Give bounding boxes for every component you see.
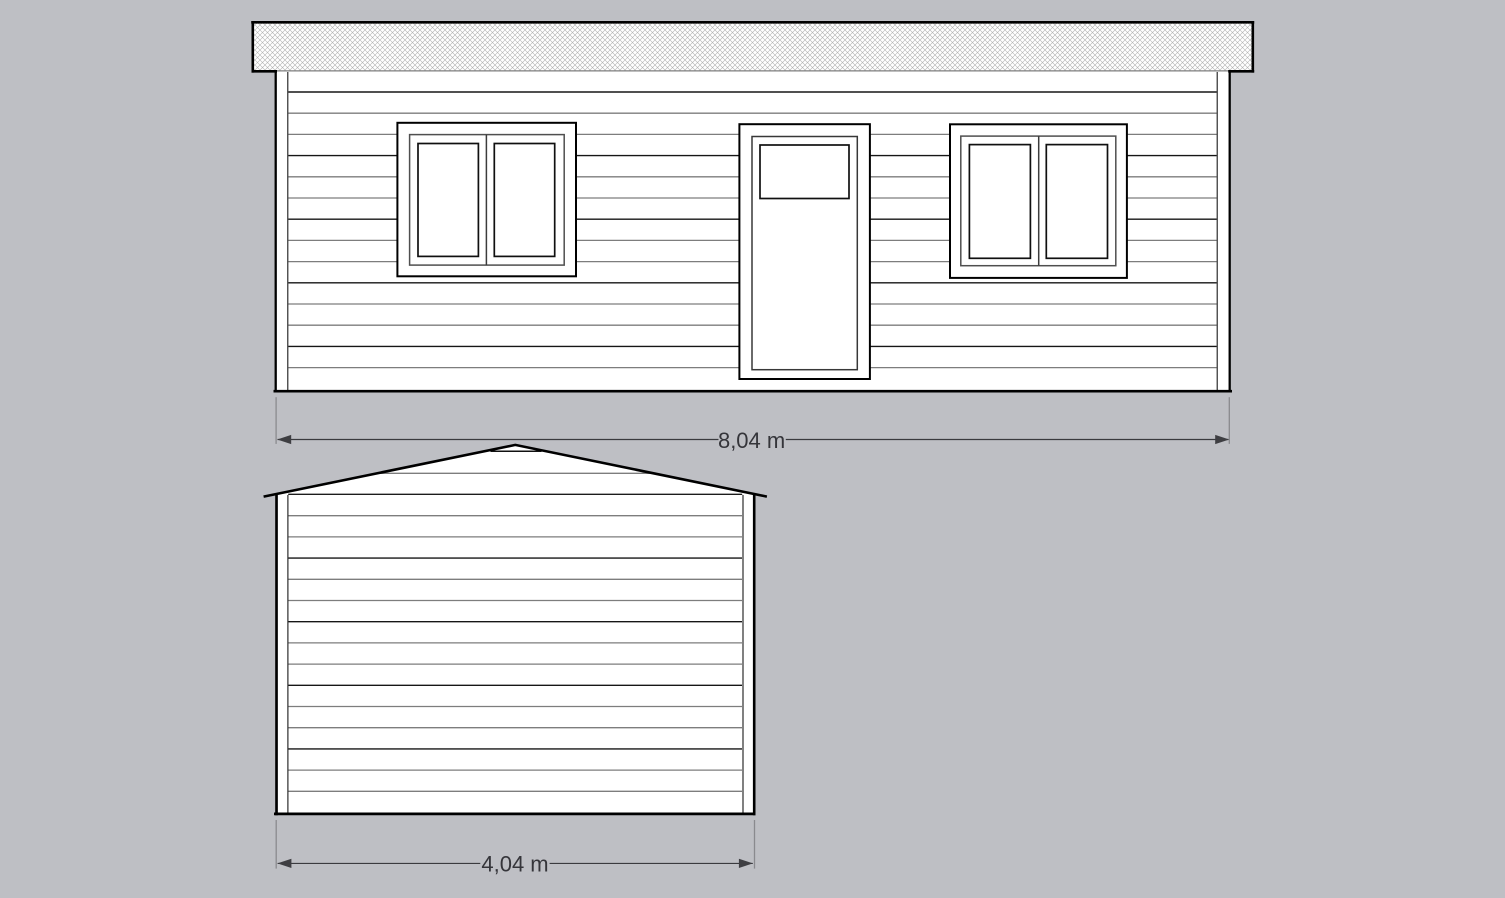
svg-text:4,04 m: 4,04 m (481, 852, 548, 877)
svg-text:8,04 m: 8,04 m (718, 428, 785, 453)
